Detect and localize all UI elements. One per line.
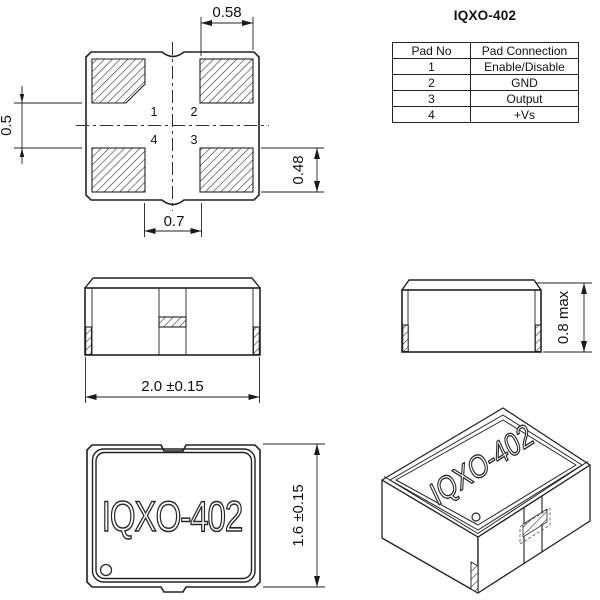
table-row: 1 Enable/Disable	[393, 59, 579, 75]
table-row: 3 Output	[393, 91, 579, 107]
top-view-part-label: IQXO-402	[102, 494, 243, 541]
dimension-pad-gap-horizontal: 0.7	[145, 203, 202, 237]
iso-view: IQXO-402	[382, 408, 590, 593]
header-pad-connection: Pad Connection	[471, 43, 579, 59]
iso-pin1-marker	[472, 513, 480, 521]
pad-number-2: 2	[191, 105, 198, 119]
front-castellation-left	[86, 327, 92, 355]
table-row: 2 GND	[393, 75, 579, 91]
pad-number-1: 1	[151, 105, 158, 119]
dimension-pad-width: 0.58	[201, 4, 253, 56]
footprint-pad-4	[92, 148, 145, 192]
side-view-front: 2.0 ±0.15	[85, 278, 260, 403]
pin1-marker	[101, 565, 112, 576]
side-view-end: 0.8 max	[402, 280, 592, 352]
dimension-body-height: 0.8 max	[536, 283, 592, 352]
dim-label-1-6: 1.6 ±0.15	[290, 484, 307, 546]
pad-table-title: IQXO-402	[385, 8, 585, 23]
pad-number-4: 4	[151, 133, 158, 147]
end-body-outline	[402, 290, 541, 352]
dim-label-2-0: 2.0 ±0.15	[141, 378, 203, 395]
cell-pad-connection: Output	[471, 91, 579, 107]
end-castellation-left	[403, 325, 409, 352]
footprint-pad-3	[200, 148, 253, 192]
dim-label-0-7: 0.7	[164, 213, 185, 230]
front-center-seal	[159, 317, 186, 327]
iso-corner-castellation	[471, 562, 478, 593]
dim-label-0-58: 0.58	[212, 4, 241, 21]
dim-label-0-8-max: 0.8 max	[555, 290, 572, 344]
cell-pad-connection: +Vs	[471, 107, 579, 123]
cell-pad-no: 4	[393, 107, 471, 123]
top-view: IQXO-402 1.6 ±0.15	[87, 444, 325, 592]
dimension-pad-height: 0.48	[261, 148, 324, 192]
datasheet-page: 1 2 4 3 0.58 0.5 0.48	[0, 0, 600, 600]
pad-connection-table: Pad No Pad Connection 1 Enable/Disable 2…	[392, 42, 579, 123]
front-castellation-right	[254, 327, 260, 355]
footprint-pad-2	[200, 59, 253, 103]
pad-number-3: 3	[191, 133, 198, 147]
cell-pad-connection: GND	[471, 75, 579, 91]
dimension-package-length: 1.6 ±0.15	[263, 444, 325, 587]
dimension-body-width: 2.0 ±0.15	[86, 357, 260, 403]
table-row: 4 +Vs	[393, 107, 579, 123]
dimension-pad-gap-vertical: 0.5	[0, 86, 82, 164]
header-pad-no: Pad No	[393, 43, 471, 59]
dim-label-0-48: 0.48	[290, 155, 307, 184]
end-castellation-right	[535, 325, 541, 352]
cell-pad-no: 1	[393, 59, 471, 75]
cell-pad-no: 2	[393, 75, 471, 91]
cell-pad-connection: Enable/Disable	[471, 59, 579, 75]
footprint-view: 1 2 4 3 0.58 0.5 0.48	[0, 4, 324, 237]
table-header-row: Pad No Pad Connection	[393, 43, 579, 59]
cell-pad-no: 3	[393, 91, 471, 107]
end-lid-outline	[402, 280, 541, 290]
front-lid-outline	[85, 278, 260, 288]
dim-label-0-5: 0.5	[0, 115, 15, 136]
